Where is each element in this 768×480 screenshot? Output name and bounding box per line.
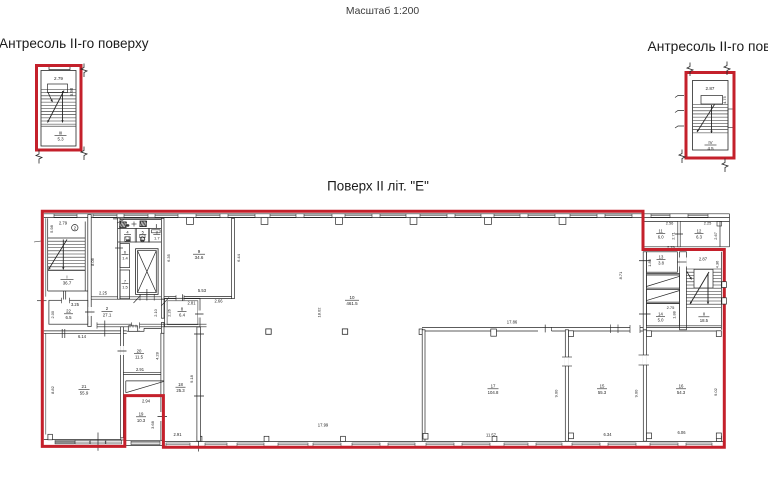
svg-text:Антресоль II-го поверху: Антресоль II-го поверху <box>0 36 149 51</box>
svg-text:36.7: 36.7 <box>63 281 72 286</box>
svg-text:5.0: 5.0 <box>658 318 664 323</box>
svg-text:3.68: 3.68 <box>150 420 155 429</box>
svg-text:6.4: 6.4 <box>179 313 186 318</box>
svg-text:12: 12 <box>697 228 702 233</box>
svg-text:20: 20 <box>137 348 142 353</box>
svg-text:IV: IV <box>708 140 712 145</box>
svg-text:Масштаб 1:200: Масштаб 1:200 <box>346 5 420 17</box>
svg-text:6.06: 6.06 <box>678 430 687 435</box>
svg-text:6.34: 6.34 <box>604 432 613 437</box>
svg-text:3.8: 3.8 <box>658 261 664 266</box>
svg-text:2.25: 2.25 <box>99 291 108 296</box>
svg-text:2.81: 2.81 <box>188 301 197 306</box>
svg-text:1.1: 1.1 <box>140 236 146 241</box>
svg-text:18: 18 <box>178 382 183 387</box>
svg-text:25.3: 25.3 <box>176 388 185 393</box>
svg-text:II: II <box>703 312 705 317</box>
svg-text:6.0: 6.0 <box>658 235 664 240</box>
svg-text:2.87: 2.87 <box>699 257 708 262</box>
svg-text:I: I <box>66 274 67 279</box>
svg-text:11: 11 <box>659 228 664 233</box>
svg-text:2.91: 2.91 <box>136 367 145 372</box>
svg-text:8.06: 8.06 <box>90 257 95 266</box>
svg-text:1.88: 1.88 <box>671 311 676 319</box>
svg-text:461.5: 461.5 <box>346 301 358 306</box>
svg-text:17.99: 17.99 <box>318 423 329 428</box>
svg-text:17.86: 17.86 <box>507 319 518 324</box>
svg-text:5.98: 5.98 <box>69 87 74 96</box>
svg-text:17: 17 <box>491 384 496 389</box>
svg-text:3.25: 3.25 <box>71 302 80 307</box>
svg-text:11.57: 11.57 <box>486 432 497 437</box>
svg-text:15: 15 <box>600 384 605 389</box>
svg-text:9.00: 9.00 <box>633 389 638 398</box>
svg-text:10.3: 10.3 <box>137 418 146 423</box>
svg-text:104.8: 104.8 <box>488 390 499 395</box>
svg-text:4.28: 4.28 <box>154 351 159 360</box>
svg-text:2.79: 2.79 <box>54 76 63 81</box>
svg-text:22: 22 <box>66 309 71 314</box>
svg-text:5.98: 5.98 <box>49 224 54 233</box>
svg-text:2.87: 2.87 <box>706 86 715 91</box>
svg-text:6.44: 6.44 <box>236 253 241 262</box>
svg-text:1.7: 1.7 <box>154 236 160 241</box>
svg-text:2.00: 2.00 <box>50 310 55 318</box>
svg-text:18.5: 18.5 <box>700 318 709 323</box>
svg-text:21: 21 <box>82 384 87 389</box>
svg-text:9.00: 9.00 <box>554 389 559 398</box>
svg-text:4.5: 4.5 <box>707 146 714 151</box>
svg-text:2.25: 2.25 <box>704 221 712 226</box>
svg-text:Антресоль II-го поверху: Антресоль II-го поверху <box>648 39 768 54</box>
svg-text:54.3: 54.3 <box>677 390 686 395</box>
svg-text:10: 10 <box>349 295 355 300</box>
svg-text:6.14: 6.14 <box>78 334 87 339</box>
svg-text:2.66: 2.66 <box>215 298 224 303</box>
svg-text:18.02: 18.02 <box>317 307 322 318</box>
svg-text:2.91: 2.91 <box>174 432 183 437</box>
svg-text:16: 16 <box>679 384 684 389</box>
svg-text:4.36: 4.36 <box>715 261 720 269</box>
svg-text:5.3: 5.3 <box>57 137 64 142</box>
svg-text:2.10: 2.10 <box>153 308 158 316</box>
svg-text:8.71: 8.71 <box>618 271 623 280</box>
svg-text:27.1: 27.1 <box>103 312 112 317</box>
svg-text:2.67: 2.67 <box>713 232 718 240</box>
svg-text:13: 13 <box>659 254 664 259</box>
svg-text:1.5: 1.5 <box>122 285 128 290</box>
svg-text:6.5: 6.5 <box>66 315 73 320</box>
svg-text:1.4: 1.4 <box>122 256 128 261</box>
svg-text:1.3: 1.3 <box>125 236 131 241</box>
svg-text:2.71: 2.71 <box>670 232 675 240</box>
svg-text:6.3: 6.3 <box>696 235 702 240</box>
svg-text:2.75: 2.75 <box>667 305 676 310</box>
svg-text:2.79: 2.79 <box>59 221 68 226</box>
svg-text:55.9: 55.9 <box>80 390 89 395</box>
svg-text:6.35: 6.35 <box>166 253 171 262</box>
svg-text:5.53: 5.53 <box>198 288 207 293</box>
svg-text:14: 14 <box>658 311 663 316</box>
svg-text:2.26: 2.26 <box>167 309 172 317</box>
svg-text:11.5: 11.5 <box>135 355 144 360</box>
svg-text:19: 19 <box>139 412 144 417</box>
svg-text:8.82: 8.82 <box>50 385 55 394</box>
svg-text:1.85: 1.85 <box>647 259 652 267</box>
svg-text:2.56: 2.56 <box>666 221 674 226</box>
svg-text:34.6: 34.6 <box>195 255 204 260</box>
svg-text:9.18: 9.18 <box>189 374 194 383</box>
svg-text:2.94: 2.94 <box>142 398 151 403</box>
svg-text:55.3: 55.3 <box>598 390 607 395</box>
svg-text:9.02: 9.02 <box>713 387 718 396</box>
svg-text:Поверх II літ. "Е": Поверх II літ. "Е" <box>327 179 429 194</box>
svg-text:III: III <box>59 130 63 135</box>
